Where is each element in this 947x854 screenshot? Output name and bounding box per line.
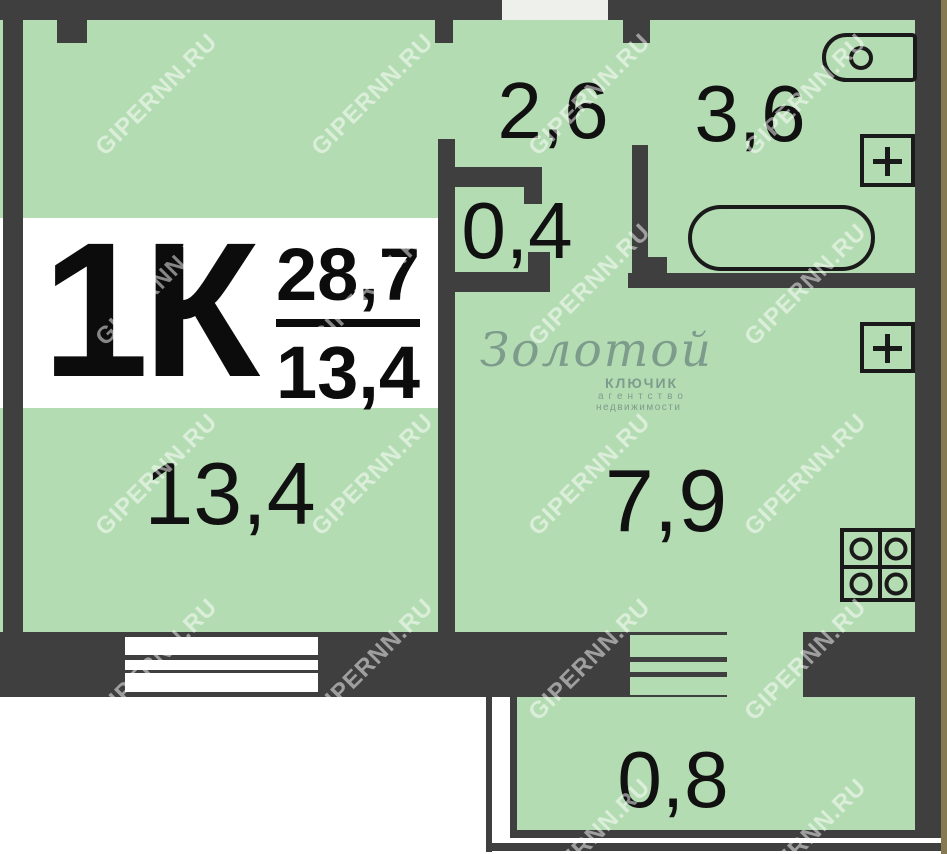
burner-cell bbox=[878, 565, 912, 598]
fraction-bar bbox=[276, 319, 420, 327]
stove-icon bbox=[840, 528, 915, 602]
closet-wall-top bbox=[455, 167, 542, 187]
hallway-area-label: 2,6 bbox=[497, 71, 608, 151]
wall-top-right bbox=[608, 0, 947, 20]
balcony-inner-left bbox=[510, 697, 517, 838]
bathroom-area-label: 3,6 bbox=[694, 74, 805, 154]
wall-living-kitchen bbox=[438, 139, 455, 632]
floorplan: 2,6 3,6 0,4 13,4 7,9 0,8 1К 28,7 13,4 Зо… bbox=[0, 0, 947, 854]
balcony-door-opening bbox=[727, 632, 803, 697]
bathroom-sink-icon bbox=[860, 134, 915, 187]
balcony-outer-bottom bbox=[486, 843, 941, 851]
living-window bbox=[125, 637, 318, 692]
wall-left bbox=[3, 20, 23, 632]
wall-bathroom-kitchen bbox=[628, 273, 915, 288]
area-fraction: 28,7 13,4 bbox=[276, 233, 420, 415]
window-mullion bbox=[630, 657, 727, 662]
burner-cell bbox=[844, 532, 878, 565]
wall-hall-bathroom bbox=[632, 145, 648, 277]
living-area-label: 13,4 bbox=[276, 331, 420, 415]
entrance-opening bbox=[502, 0, 608, 20]
window-mullion bbox=[125, 670, 318, 673]
edge-strip bbox=[941, 0, 947, 854]
apartment-type-label: 1К bbox=[42, 234, 254, 386]
window-mullion bbox=[125, 655, 318, 660]
watermark-text: GIPERNN.RU bbox=[90, 773, 223, 854]
balcony-inner-bottom bbox=[510, 830, 915, 838]
balcony-outer-left bbox=[486, 695, 492, 852]
burner-cell bbox=[844, 565, 878, 598]
bathroom-door-jamb bbox=[623, 20, 650, 43]
kitchen-area-label: 7,9 bbox=[605, 457, 727, 545]
burner-cell bbox=[878, 532, 912, 565]
wall-top-left bbox=[0, 0, 502, 20]
living-door-jamb bbox=[435, 20, 453, 43]
kitchen-sink-icon bbox=[860, 322, 915, 373]
closet-area-label: 0,4 bbox=[461, 191, 572, 271]
closet-wall-bottom bbox=[438, 272, 550, 292]
balcony-window bbox=[630, 635, 727, 695]
window-mullion bbox=[630, 672, 727, 677]
toilet-flush-icon bbox=[849, 46, 873, 70]
total-area-label: 28,7 bbox=[276, 233, 420, 317]
wall-top-stub bbox=[57, 20, 87, 43]
living-room-area-label: 13,4 bbox=[144, 450, 315, 538]
bathtub-icon bbox=[688, 205, 875, 271]
balcony-area-label: 0,8 bbox=[617, 740, 728, 820]
wall-right bbox=[915, 0, 941, 838]
watermark-text: GIPERNN.RU bbox=[306, 773, 439, 854]
